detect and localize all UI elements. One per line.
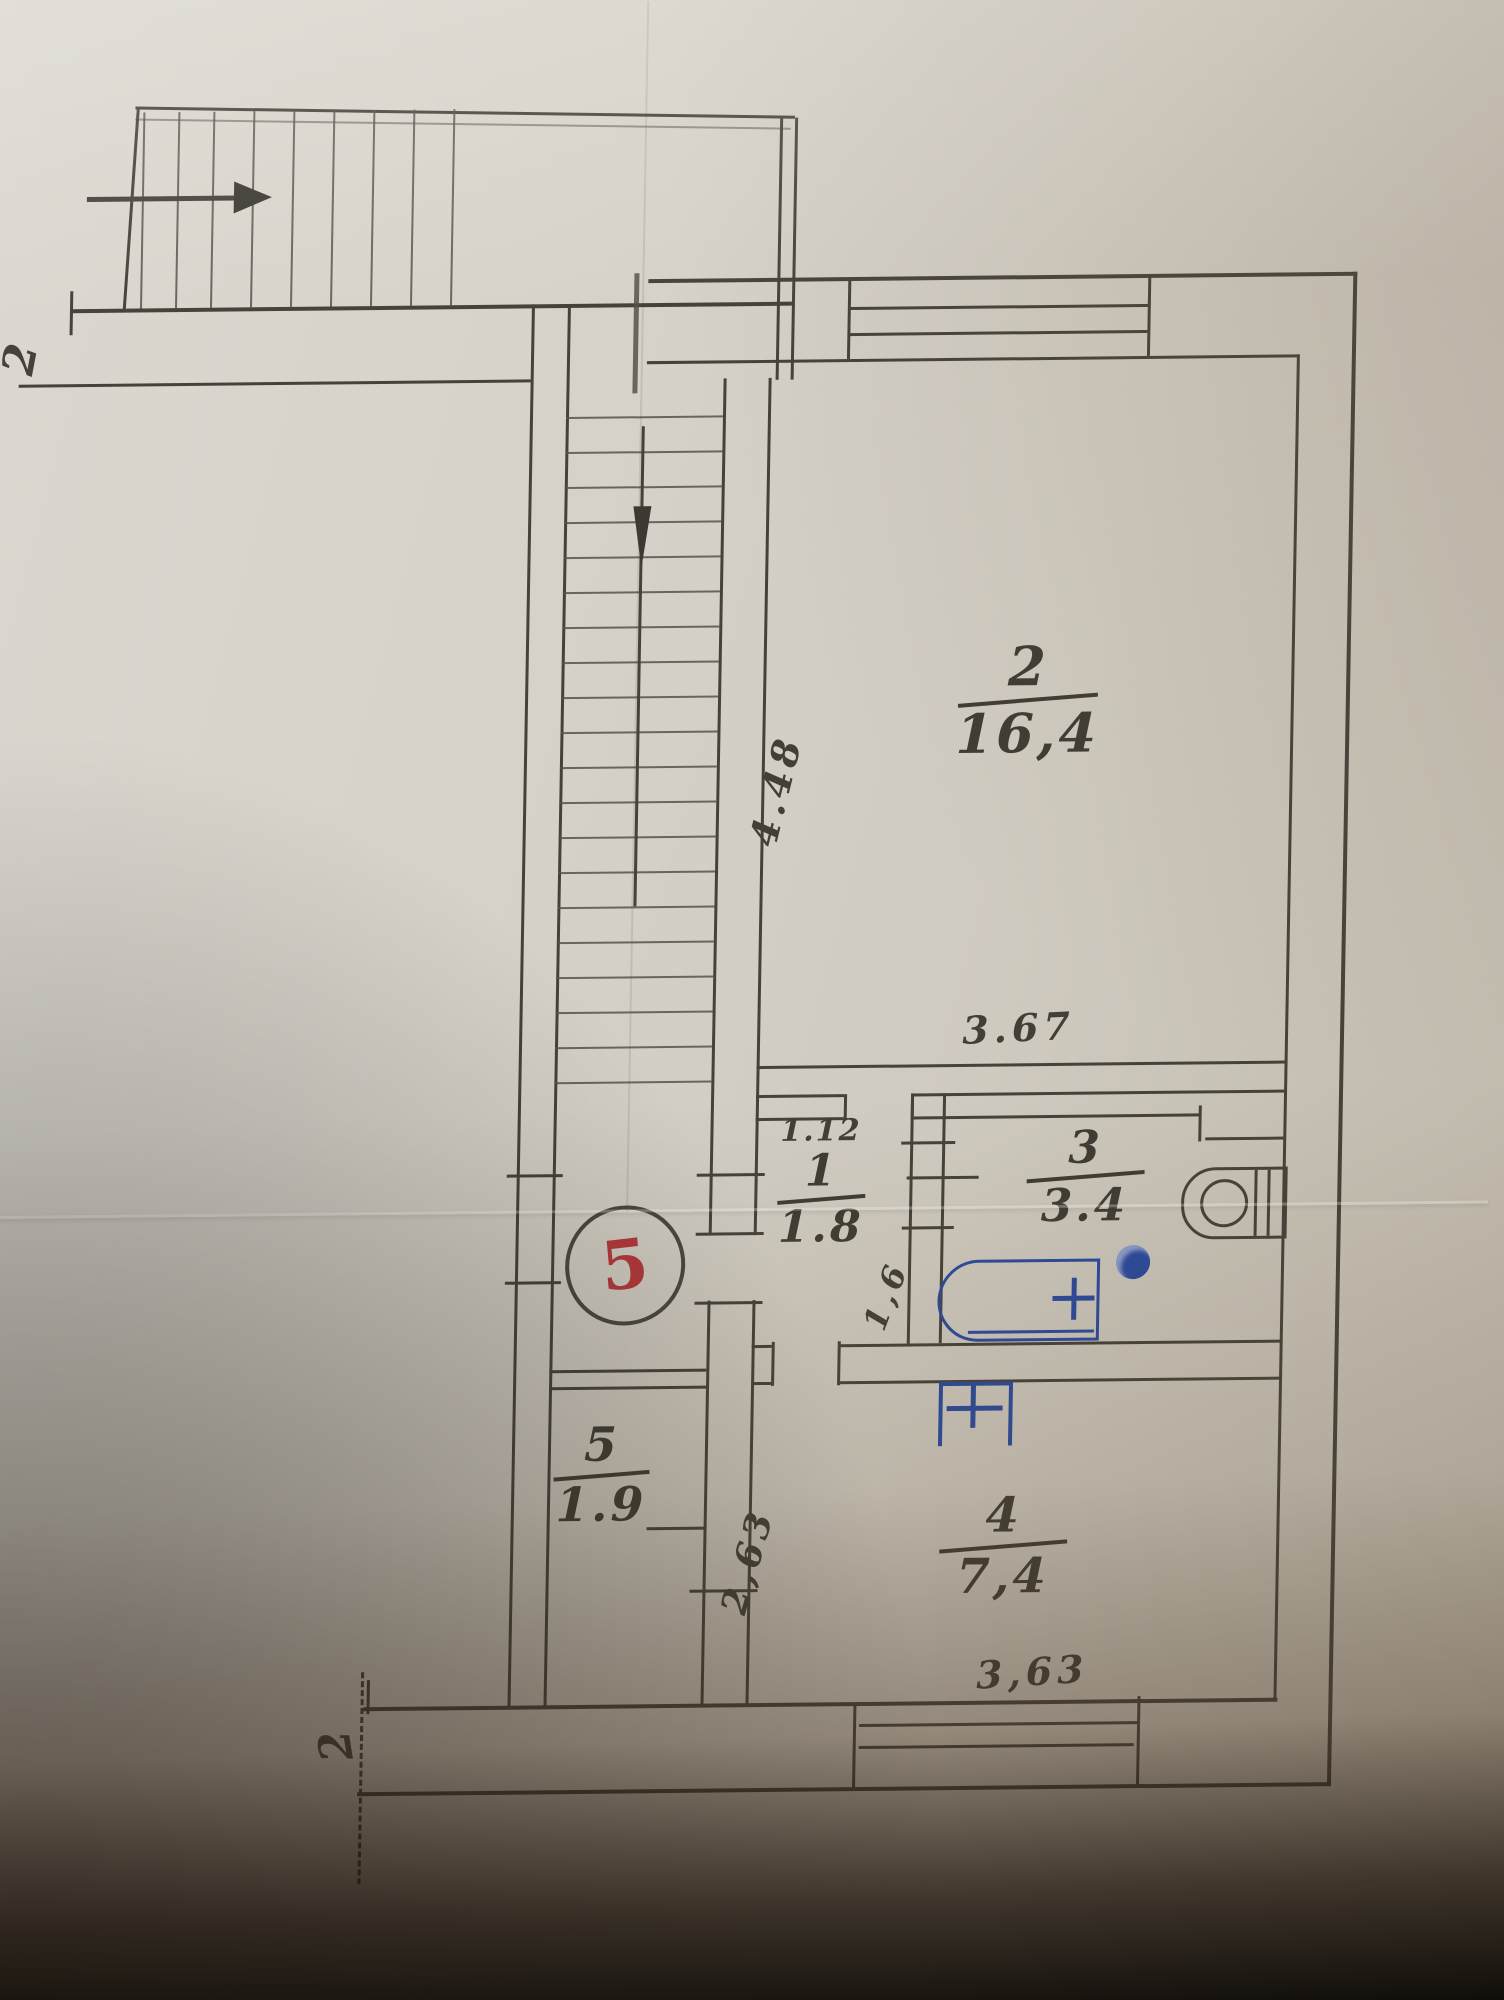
stair-block-right-wall-inner xyxy=(791,118,799,380)
entrance-door-jamb-top xyxy=(696,1232,764,1236)
stair-block-top-edge xyxy=(135,107,795,119)
blue-dot-mark xyxy=(1116,1245,1151,1279)
axis-mark-top-left: 2 xyxy=(0,340,48,379)
floor-plan-drawing: 2 xyxy=(0,0,1504,2000)
entry-stair-treads xyxy=(5,0,1504,8)
entry-arrow-head-icon xyxy=(234,181,273,213)
bath-wall-left xyxy=(907,1093,914,1343)
stairwell-tread xyxy=(557,941,714,945)
stairwell-tread xyxy=(556,976,713,980)
bathtub-tap-cross-v xyxy=(1071,1278,1077,1320)
floor-plan-photo: 2 xyxy=(0,0,1504,2000)
bath-room-number: 3 xyxy=(1013,1122,1159,1173)
stairwell-tread xyxy=(566,415,723,419)
gallery-left-tick xyxy=(70,291,74,335)
sink-cross-v xyxy=(970,1384,976,1428)
room-label-kitchen: 4 7,4 xyxy=(927,1489,1079,1604)
left-wall-tick-1 xyxy=(507,1174,563,1178)
hall-room-area: 1.8 xyxy=(765,1203,876,1253)
entry-stair-tread xyxy=(450,109,455,305)
bath-wall-tick-3 xyxy=(902,1226,954,1230)
top-window-pane-line-2 xyxy=(849,330,1147,336)
toilet-icon xyxy=(1180,1167,1287,1240)
left-wall-tick-2 xyxy=(505,1281,561,1285)
bottom-window-pane-line-1 xyxy=(859,1721,1139,1727)
entry-stair-tread xyxy=(290,111,295,307)
corridor-wall-right-lower xyxy=(745,1300,755,1705)
entry-stair-tread xyxy=(175,112,180,308)
stairwell-tread xyxy=(556,1011,713,1015)
corridor-wall-left-upper xyxy=(709,378,727,1235)
stair-block-top-edge-2 xyxy=(135,119,791,130)
bathtub-inner-line xyxy=(968,1330,1094,1334)
axis-mark-bottom-left: 2 xyxy=(309,1726,364,1765)
sink-icon xyxy=(938,1381,1013,1446)
kitchen-door-jamb-left xyxy=(771,1342,775,1386)
bath-room-area: 3.4 xyxy=(1012,1179,1158,1230)
entry-stair-tread xyxy=(370,110,375,306)
room-label-living: 2 16,4 xyxy=(942,636,1114,765)
left-wall-outer xyxy=(507,304,534,1707)
bottom-window-right-jamb xyxy=(1136,1696,1141,1786)
storage-room-area: 1.9 xyxy=(541,1479,662,1532)
bottom-wall-left-tick xyxy=(366,1680,370,1714)
bottom-window-pane-line-2 xyxy=(859,1743,1134,1749)
bottom-wall-outer xyxy=(357,1782,1331,1796)
bath-door-notch-vertical xyxy=(1198,1105,1202,1141)
dim-hall-width: 1.12 xyxy=(780,1113,862,1149)
kitchen-top-wall-a1 xyxy=(752,1345,772,1348)
entry-stair-tread xyxy=(410,110,415,306)
storage-room-number: 5 xyxy=(542,1419,663,1472)
dim-corridor-depth: 2,63 xyxy=(713,1504,783,1619)
hall-room-number: 1 xyxy=(766,1147,877,1197)
entry-stair-tread xyxy=(210,112,215,308)
entry-arrow-shaft xyxy=(87,195,237,202)
living-room-number: 2 xyxy=(943,636,1114,697)
hall-top-wall-b2 xyxy=(913,1113,1201,1119)
stairwell-treads xyxy=(5,0,1504,8)
top-wall-inner xyxy=(647,354,1299,364)
top-wall-outer xyxy=(648,272,1357,283)
toilet-bowl-circle xyxy=(1200,1179,1249,1228)
hall-top-wall-a1 xyxy=(756,1094,844,1098)
toilet-tank-line-2 xyxy=(1267,1170,1271,1236)
bath-door-notch-line xyxy=(1205,1137,1285,1141)
kitchen-top-wall-b1 xyxy=(751,1382,771,1385)
living-room-area: 16,4 xyxy=(942,704,1113,765)
living-bottom-wall xyxy=(757,1061,1287,1070)
room-label-bath: 3 3.4 xyxy=(1012,1122,1159,1231)
storage-top-wall-1 xyxy=(549,1369,706,1374)
bottom-window-left-jamb xyxy=(852,1704,856,1789)
toilet-tank-line-1 xyxy=(1254,1170,1258,1236)
stair-block-right-wall-outer xyxy=(776,118,784,380)
kitchen-door-jamb-right xyxy=(837,1341,841,1385)
stair-arrow-shaft xyxy=(633,426,644,906)
right-wall-inner xyxy=(1273,354,1300,1701)
kitchen-room-area: 7,4 xyxy=(927,1550,1078,1604)
stairwell-tread xyxy=(554,1081,711,1085)
kitchen-top-wall-b2 xyxy=(839,1377,1281,1385)
gallery-bottom-wall xyxy=(19,379,531,387)
right-wall-outer xyxy=(1327,272,1357,1786)
top-window-left-jamb xyxy=(847,279,851,359)
dim-stairwell-depth: 4.48 xyxy=(740,731,811,851)
stairwell-tread xyxy=(555,1046,712,1050)
kitchen-room-number: 4 xyxy=(928,1489,1079,1543)
axis-dashed-line-bottom xyxy=(357,1672,364,1884)
entry-stair-tread xyxy=(330,110,335,306)
room-label-storage: 5 1.9 xyxy=(541,1419,663,1532)
bath-wall-tick-1 xyxy=(901,1141,955,1145)
gallery-top-wall xyxy=(70,302,792,314)
bath-wall-tick-2 xyxy=(907,1176,979,1180)
storage-top-wall-2 xyxy=(549,1386,706,1391)
dim-living-width: 3.67 xyxy=(962,1003,1075,1053)
apartment-number-badge: 5 xyxy=(564,1205,686,1326)
top-window-right-jamb xyxy=(1147,276,1151,356)
top-window-pane-line-1 xyxy=(850,304,1150,310)
stair-block-left-edge xyxy=(123,109,140,311)
dim-kitchen-width: 3,63 xyxy=(975,1646,1089,1698)
apartment-number: 5 xyxy=(598,1223,652,1308)
wall-junction-tick xyxy=(632,273,639,393)
hall-top-wall-a2 xyxy=(913,1090,1286,1097)
room-label-hall: 1 1.8 xyxy=(765,1147,877,1253)
entry-stair-tread xyxy=(140,112,145,308)
corridor-wall-left-lower xyxy=(700,1301,710,1706)
stair-arrow-head-icon xyxy=(632,506,651,568)
bathtub-icon xyxy=(937,1258,1100,1342)
